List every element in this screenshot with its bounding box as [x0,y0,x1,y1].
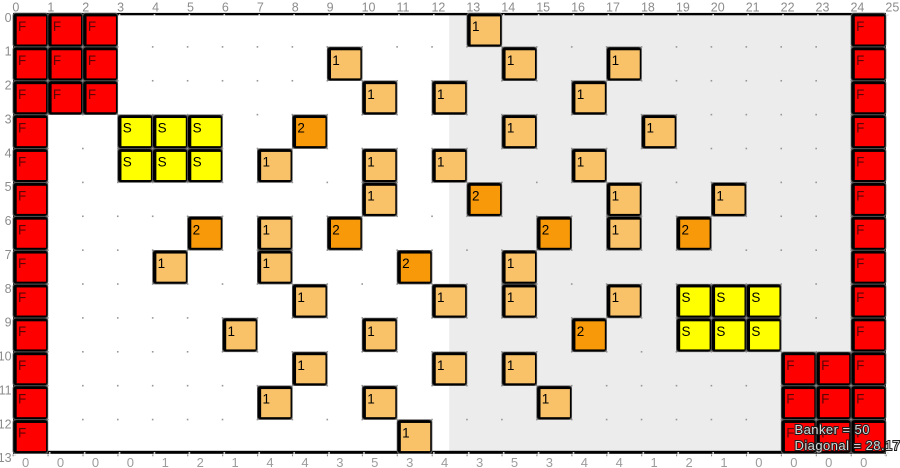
svg-text:1: 1 [367,392,375,407]
svg-text:13: 13 [466,1,480,15]
svg-text:3: 3 [546,455,553,468]
svg-text:1: 1 [402,426,410,441]
svg-text:F: F [856,188,864,203]
svg-text:S: S [751,324,760,339]
svg-text:1: 1 [367,87,375,102]
svg-text:S: S [193,121,202,136]
svg-text:F: F [856,19,864,34]
svg-text:0: 0 [5,11,12,25]
svg-text:11: 11 [0,383,12,397]
svg-text:24: 24 [850,1,864,15]
svg-text:2: 2 [5,79,12,93]
svg-text:1: 1 [507,290,515,305]
svg-text:7: 7 [5,248,12,262]
svg-text:8: 8 [292,1,299,15]
svg-text:20: 20 [711,1,725,15]
svg-text:1: 1 [507,121,515,136]
svg-text:1: 1 [228,324,236,339]
svg-text:F: F [856,87,864,102]
svg-text:0: 0 [825,455,832,468]
svg-text:S: S [716,324,725,339]
svg-text:F: F [856,256,864,271]
svg-text:Diagonal = 28.17: Diagonal = 28.17 [795,438,900,453]
svg-text:1: 1 [507,256,515,271]
svg-text:3: 3 [476,455,483,468]
svg-text:15: 15 [536,1,550,15]
svg-text:10: 10 [362,1,376,15]
svg-text:2: 2 [685,455,692,468]
svg-text:F: F [18,19,26,34]
svg-text:2: 2 [332,222,340,237]
svg-text:1: 1 [232,455,239,468]
svg-text:0: 0 [755,455,762,468]
svg-text:4: 4 [5,146,12,160]
svg-text:S: S [716,290,725,305]
svg-text:F: F [18,53,26,68]
svg-text:2: 2 [402,256,410,271]
svg-text:2: 2 [82,1,89,15]
svg-text:1: 1 [262,155,270,170]
svg-text:F: F [88,53,96,68]
svg-text:3: 3 [117,1,124,15]
svg-text:1: 1 [612,290,620,305]
svg-text:Banker = 50: Banker = 50 [795,422,870,437]
svg-text:16: 16 [571,1,585,15]
svg-text:1: 1 [367,155,375,170]
svg-text:F: F [856,155,864,170]
svg-text:2: 2 [681,222,689,237]
svg-text:F: F [856,358,864,373]
svg-text:18: 18 [641,1,655,15]
svg-text:F: F [786,392,794,407]
svg-text:1: 1 [647,121,655,136]
svg-text:1: 1 [720,455,727,468]
svg-text:F: F [821,392,829,407]
svg-text:2: 2 [542,222,550,237]
svg-text:F: F [18,358,26,373]
svg-text:F: F [18,392,26,407]
svg-text:1: 1 [472,19,480,34]
svg-text:3: 3 [5,112,12,126]
svg-text:3: 3 [406,455,413,468]
svg-text:F: F [18,222,26,237]
svg-text:F: F [88,87,96,102]
svg-text:F: F [821,358,829,373]
svg-text:1: 1 [507,358,515,373]
svg-text:0: 0 [860,455,867,468]
svg-text:21: 21 [746,1,760,15]
svg-text:F: F [856,121,864,136]
svg-text:S: S [123,155,132,170]
svg-text:1: 1 [612,53,620,68]
svg-text:F: F [18,188,26,203]
svg-text:1: 1 [162,455,169,468]
svg-text:4: 4 [441,455,448,468]
svg-text:23: 23 [816,1,830,15]
svg-text:F: F [18,121,26,136]
svg-text:1: 1 [437,87,445,102]
svg-text:2: 2 [577,324,585,339]
svg-text:F: F [856,324,864,339]
svg-text:0: 0 [127,455,134,468]
svg-text:5: 5 [5,180,12,194]
svg-text:F: F [18,256,26,271]
svg-text:1: 1 [297,290,305,305]
svg-text:1: 1 [612,188,620,203]
svg-text:8: 8 [5,282,12,296]
svg-text:1: 1 [651,455,658,468]
svg-text:F: F [53,19,61,34]
svg-text:S: S [193,155,202,170]
svg-text:1: 1 [507,53,515,68]
svg-text:10: 10 [0,350,12,364]
svg-text:S: S [158,155,167,170]
svg-text:12: 12 [431,1,445,15]
svg-text:25: 25 [885,1,899,15]
svg-text:19: 19 [676,1,690,15]
svg-text:5: 5 [511,455,518,468]
svg-text:F: F [856,392,864,407]
svg-text:F: F [856,53,864,68]
svg-text:S: S [681,324,690,339]
svg-text:F: F [18,426,26,441]
svg-text:1: 1 [158,256,166,271]
svg-text:2: 2 [297,121,305,136]
svg-text:2: 2 [472,188,480,203]
svg-text:1: 1 [367,188,375,203]
svg-text:0: 0 [22,455,29,468]
svg-text:22: 22 [781,1,795,15]
svg-text:0: 0 [57,455,64,468]
svg-text:4: 4 [616,455,623,468]
svg-text:S: S [158,121,167,136]
svg-text:1: 1 [297,358,305,373]
svg-text:1: 1 [47,1,54,15]
svg-text:14: 14 [501,1,515,15]
svg-text:7: 7 [257,1,264,15]
svg-text:0: 0 [790,455,797,468]
svg-text:9: 9 [5,316,12,330]
svg-text:1: 1 [437,155,445,170]
svg-text:F: F [786,358,794,373]
svg-text:S: S [751,290,760,305]
svg-text:1: 1 [612,222,620,237]
svg-text:2: 2 [197,455,204,468]
svg-text:F: F [18,324,26,339]
svg-text:1: 1 [262,256,270,271]
svg-text:0: 0 [12,1,19,15]
svg-text:4: 4 [301,455,308,468]
svg-text:F: F [18,290,26,305]
svg-text:0: 0 [92,455,99,468]
svg-text:4: 4 [581,455,588,468]
svg-text:3: 3 [336,455,343,468]
svg-text:17: 17 [606,1,620,15]
svg-text:F: F [856,290,864,305]
svg-text:6: 6 [5,214,12,228]
svg-text:5: 5 [371,455,378,468]
svg-text:1: 1 [262,222,270,237]
svg-text:S: S [681,290,690,305]
svg-text:1: 1 [542,392,550,407]
svg-text:1: 1 [577,87,585,102]
svg-text:6: 6 [222,1,229,15]
svg-text:F: F [18,87,26,102]
svg-text:1: 1 [437,290,445,305]
svg-text:F: F [53,53,61,68]
svg-text:1: 1 [367,324,375,339]
svg-text:S: S [123,121,132,136]
svg-text:F: F [786,426,794,441]
svg-text:4: 4 [152,1,159,15]
svg-text:9: 9 [327,1,334,15]
svg-text:F: F [53,87,61,102]
svg-text:1: 1 [5,45,12,59]
svg-text:12: 12 [0,417,12,431]
svg-text:13: 13 [0,451,12,465]
svg-text:1: 1 [262,392,270,407]
svg-text:4: 4 [266,455,273,468]
svg-text:5: 5 [187,1,194,15]
svg-text:1: 1 [577,155,585,170]
svg-text:2: 2 [193,222,201,237]
svg-text:1: 1 [437,358,445,373]
svg-text:1: 1 [716,188,724,203]
svg-text:11: 11 [397,1,410,15]
svg-text:F: F [18,155,26,170]
svg-text:F: F [856,222,864,237]
svg-text:1: 1 [332,53,340,68]
svg-text:F: F [88,19,96,34]
